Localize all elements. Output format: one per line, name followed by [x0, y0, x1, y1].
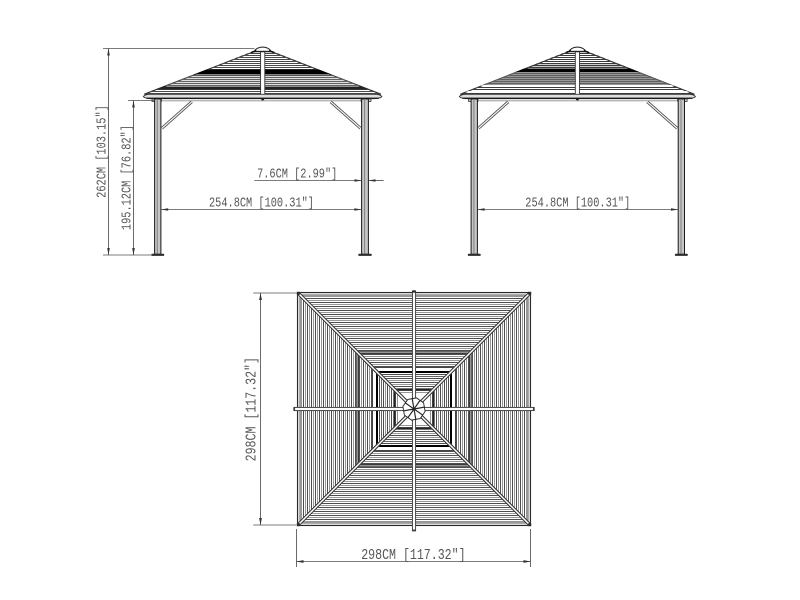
- svg-text:195.12CM [76.82″]: 195.12CM [76.82″]: [119, 125, 135, 230]
- svg-text:262CM [103.15″]: 262CM [103.15″]: [94, 105, 110, 198]
- svg-text:254.8CM [100.31″]: 254.8CM [100.31″]: [209, 195, 314, 211]
- svg-text:298CM [117.32″]: 298CM [117.32″]: [244, 357, 261, 461]
- svg-text:7.6CM [2.99″]: 7.6CM [2.99″]: [257, 166, 337, 182]
- svg-text:298CM [117.32″]: 298CM [117.32″]: [361, 548, 465, 565]
- svg-text:254.8CM [100.31″]: 254.8CM [100.31″]: [525, 195, 630, 211]
